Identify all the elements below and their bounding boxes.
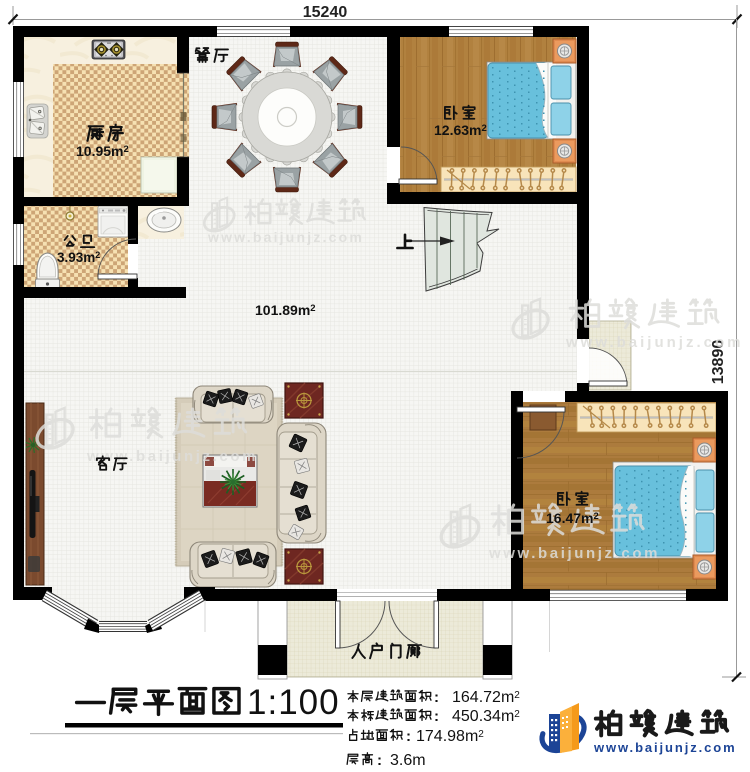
svg-text:3.93m2: 3.93m2 [57,250,100,265]
svg-text:10.95m2: 10.95m2 [76,143,129,159]
svg-text:www.baijunjz.com: www.baijunjz.com [565,334,743,351]
svg-text:450.34m2: 450.34m2 [452,708,520,725]
svg-text:www.baijunjz.com: www.baijunjz.com [86,448,258,465]
svg-text:www.baijunjz.com: www.baijunjz.com [207,229,364,245]
svg-text::: : [406,728,411,745]
svg-text:101.89m2: 101.89m2 [255,302,316,318]
svg-text:www.baijunjz.com: www.baijunjz.com [488,545,660,562]
svg-text::: : [434,689,439,706]
svg-text:174.98m2: 174.98m2 [416,728,484,745]
svg-text::: : [377,752,382,769]
svg-text:16.47m2: 16.47m2 [546,510,599,526]
svg-text:12.63m2: 12.63m2 [434,122,487,138]
svg-text::: : [434,708,439,725]
svg-text:1:100: 1:100 [247,683,340,722]
svg-text:15240: 15240 [303,4,348,21]
svg-text:3.6m: 3.6m [390,752,426,769]
svg-text:www.baijunjz.com: www.baijunjz.com [593,740,737,755]
svg-text:164.72m2: 164.72m2 [452,689,520,706]
